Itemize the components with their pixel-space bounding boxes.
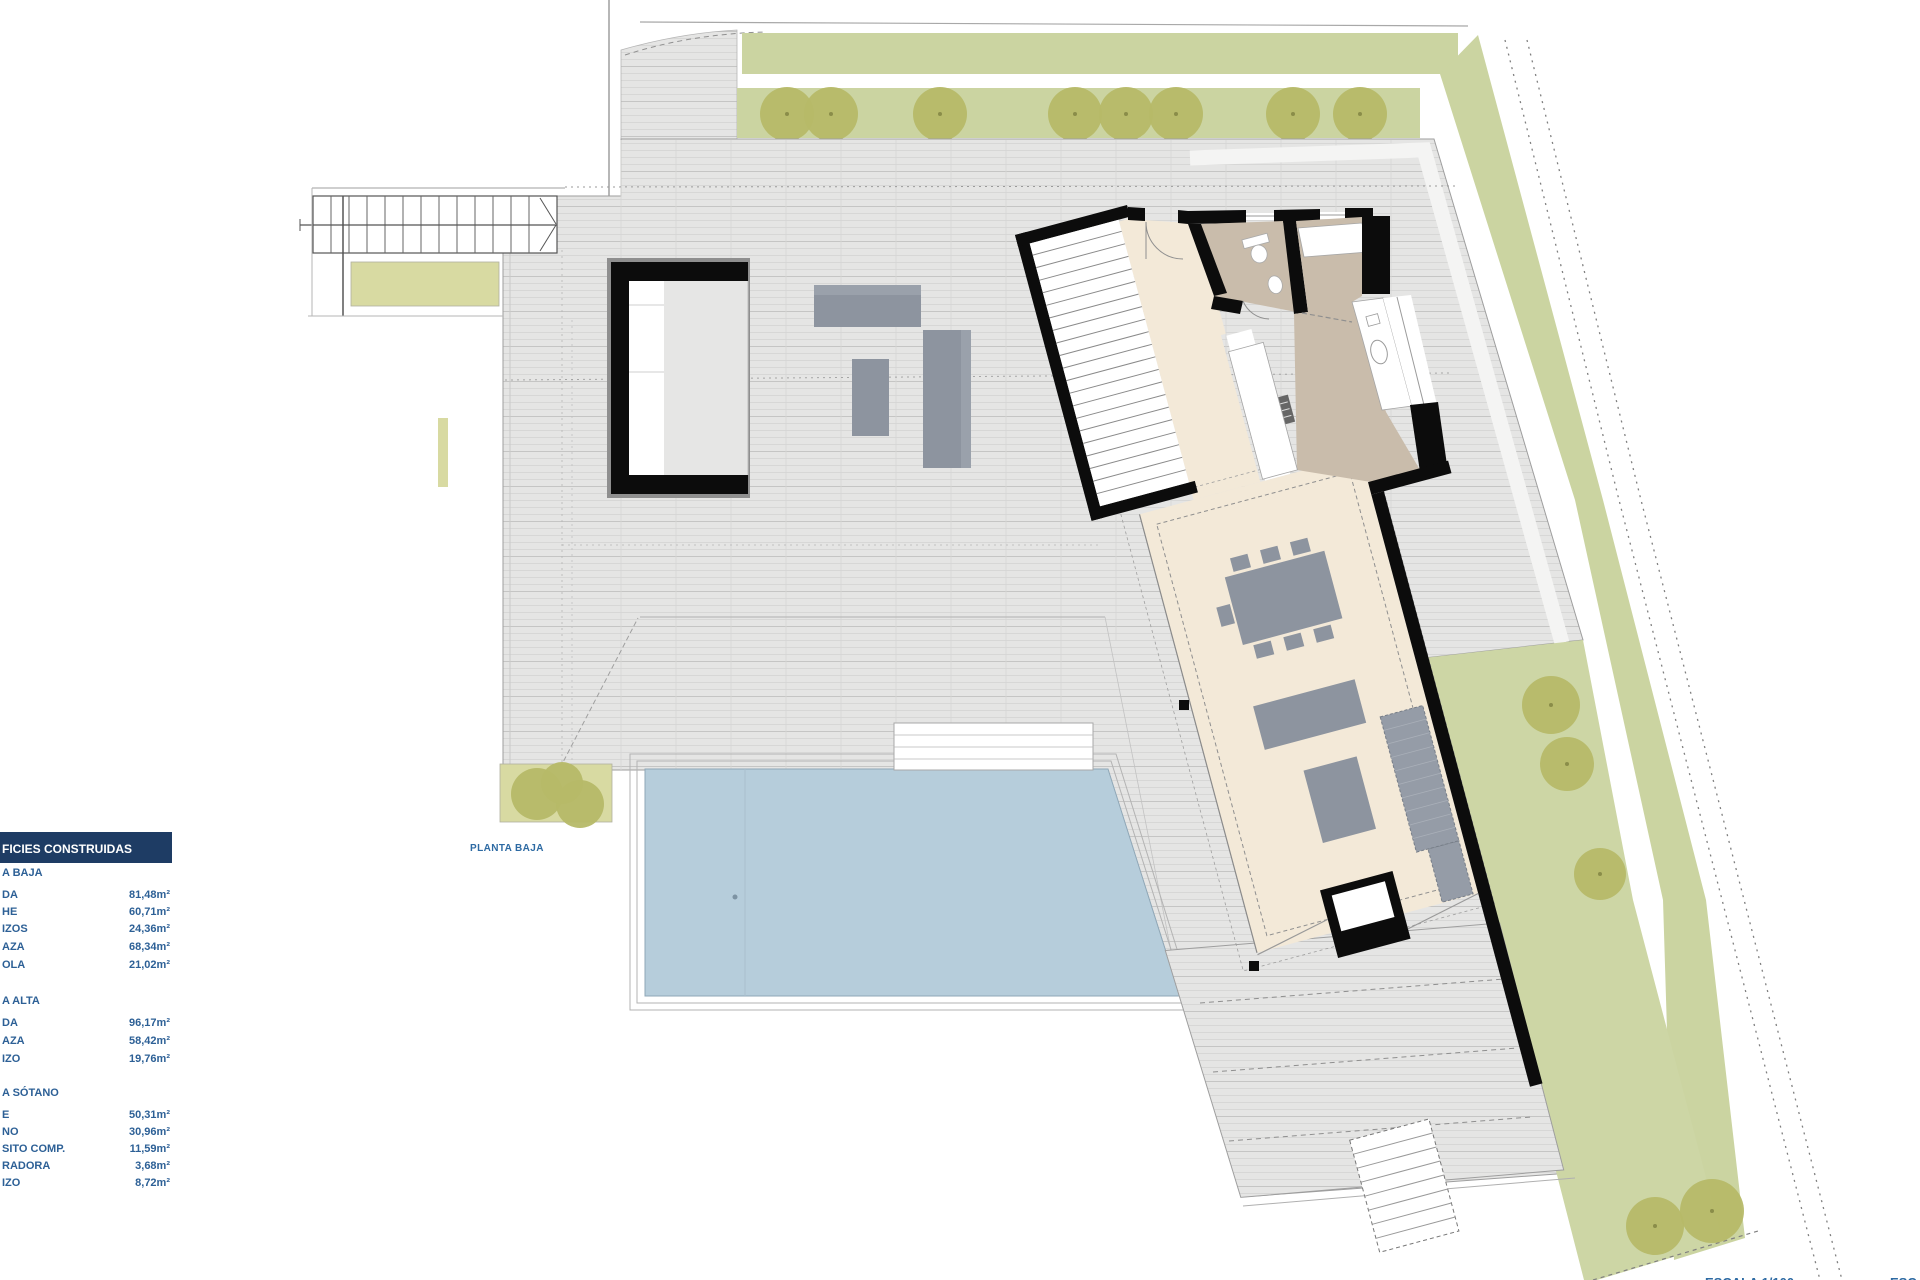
svg-text:AZA: AZA xyxy=(2,941,25,953)
svg-text:RADORA: RADORA xyxy=(2,1160,50,1172)
svg-text:IZO: IZO xyxy=(2,1053,21,1065)
svg-text:60,71m²: 60,71m² xyxy=(129,906,170,918)
svg-text:58,42m²: 58,42m² xyxy=(129,1035,170,1047)
svg-text:A BAJA: A BAJA xyxy=(2,867,43,879)
svg-text:SITO COMP.: SITO COMP. xyxy=(2,1143,65,1155)
svg-text:IZOS: IZOS xyxy=(2,923,28,935)
svg-text:OLA: OLA xyxy=(2,959,25,971)
svg-text:DA: DA xyxy=(2,1017,18,1029)
svg-text:3,68m²: 3,68m² xyxy=(135,1160,170,1172)
svg-text:E: E xyxy=(2,1109,9,1121)
svg-text:IZO: IZO xyxy=(2,1177,21,1189)
svg-text:81,48m²: 81,48m² xyxy=(129,889,170,901)
svg-text:ESCALA 1/100: ESCALA 1/100 xyxy=(1705,1275,1794,1280)
svg-text:21,02m²: 21,02m² xyxy=(129,959,170,971)
svg-text:HE: HE xyxy=(2,906,17,918)
svg-text:96,17m²: 96,17m² xyxy=(129,1017,170,1029)
svg-text:A SÓTANO: A SÓTANO xyxy=(2,1086,59,1099)
svg-text:8,72m²: 8,72m² xyxy=(135,1177,170,1189)
svg-text:A ALTA: A ALTA xyxy=(2,995,40,1007)
svg-text:DA: DA xyxy=(2,889,18,901)
svg-text:FICIES CONSTRUIDAS: FICIES CONSTRUIDAS xyxy=(2,842,132,856)
svg-text:24,36m²: 24,36m² xyxy=(129,923,170,935)
svg-text:50,31m²: 50,31m² xyxy=(129,1109,170,1121)
svg-text:11,59m²: 11,59m² xyxy=(130,1143,171,1155)
svg-text:19,76m²: 19,76m² xyxy=(129,1053,170,1065)
svg-text:AZA: AZA xyxy=(2,1035,25,1047)
svg-text:PLANTA BAJA: PLANTA BAJA xyxy=(470,843,544,854)
svg-text:30,96m²: 30,96m² xyxy=(129,1126,170,1138)
svg-text:NO: NO xyxy=(2,1126,19,1138)
svg-text:68,34m²: 68,34m² xyxy=(129,941,170,953)
svg-text:ESC: ESC xyxy=(1890,1275,1917,1280)
